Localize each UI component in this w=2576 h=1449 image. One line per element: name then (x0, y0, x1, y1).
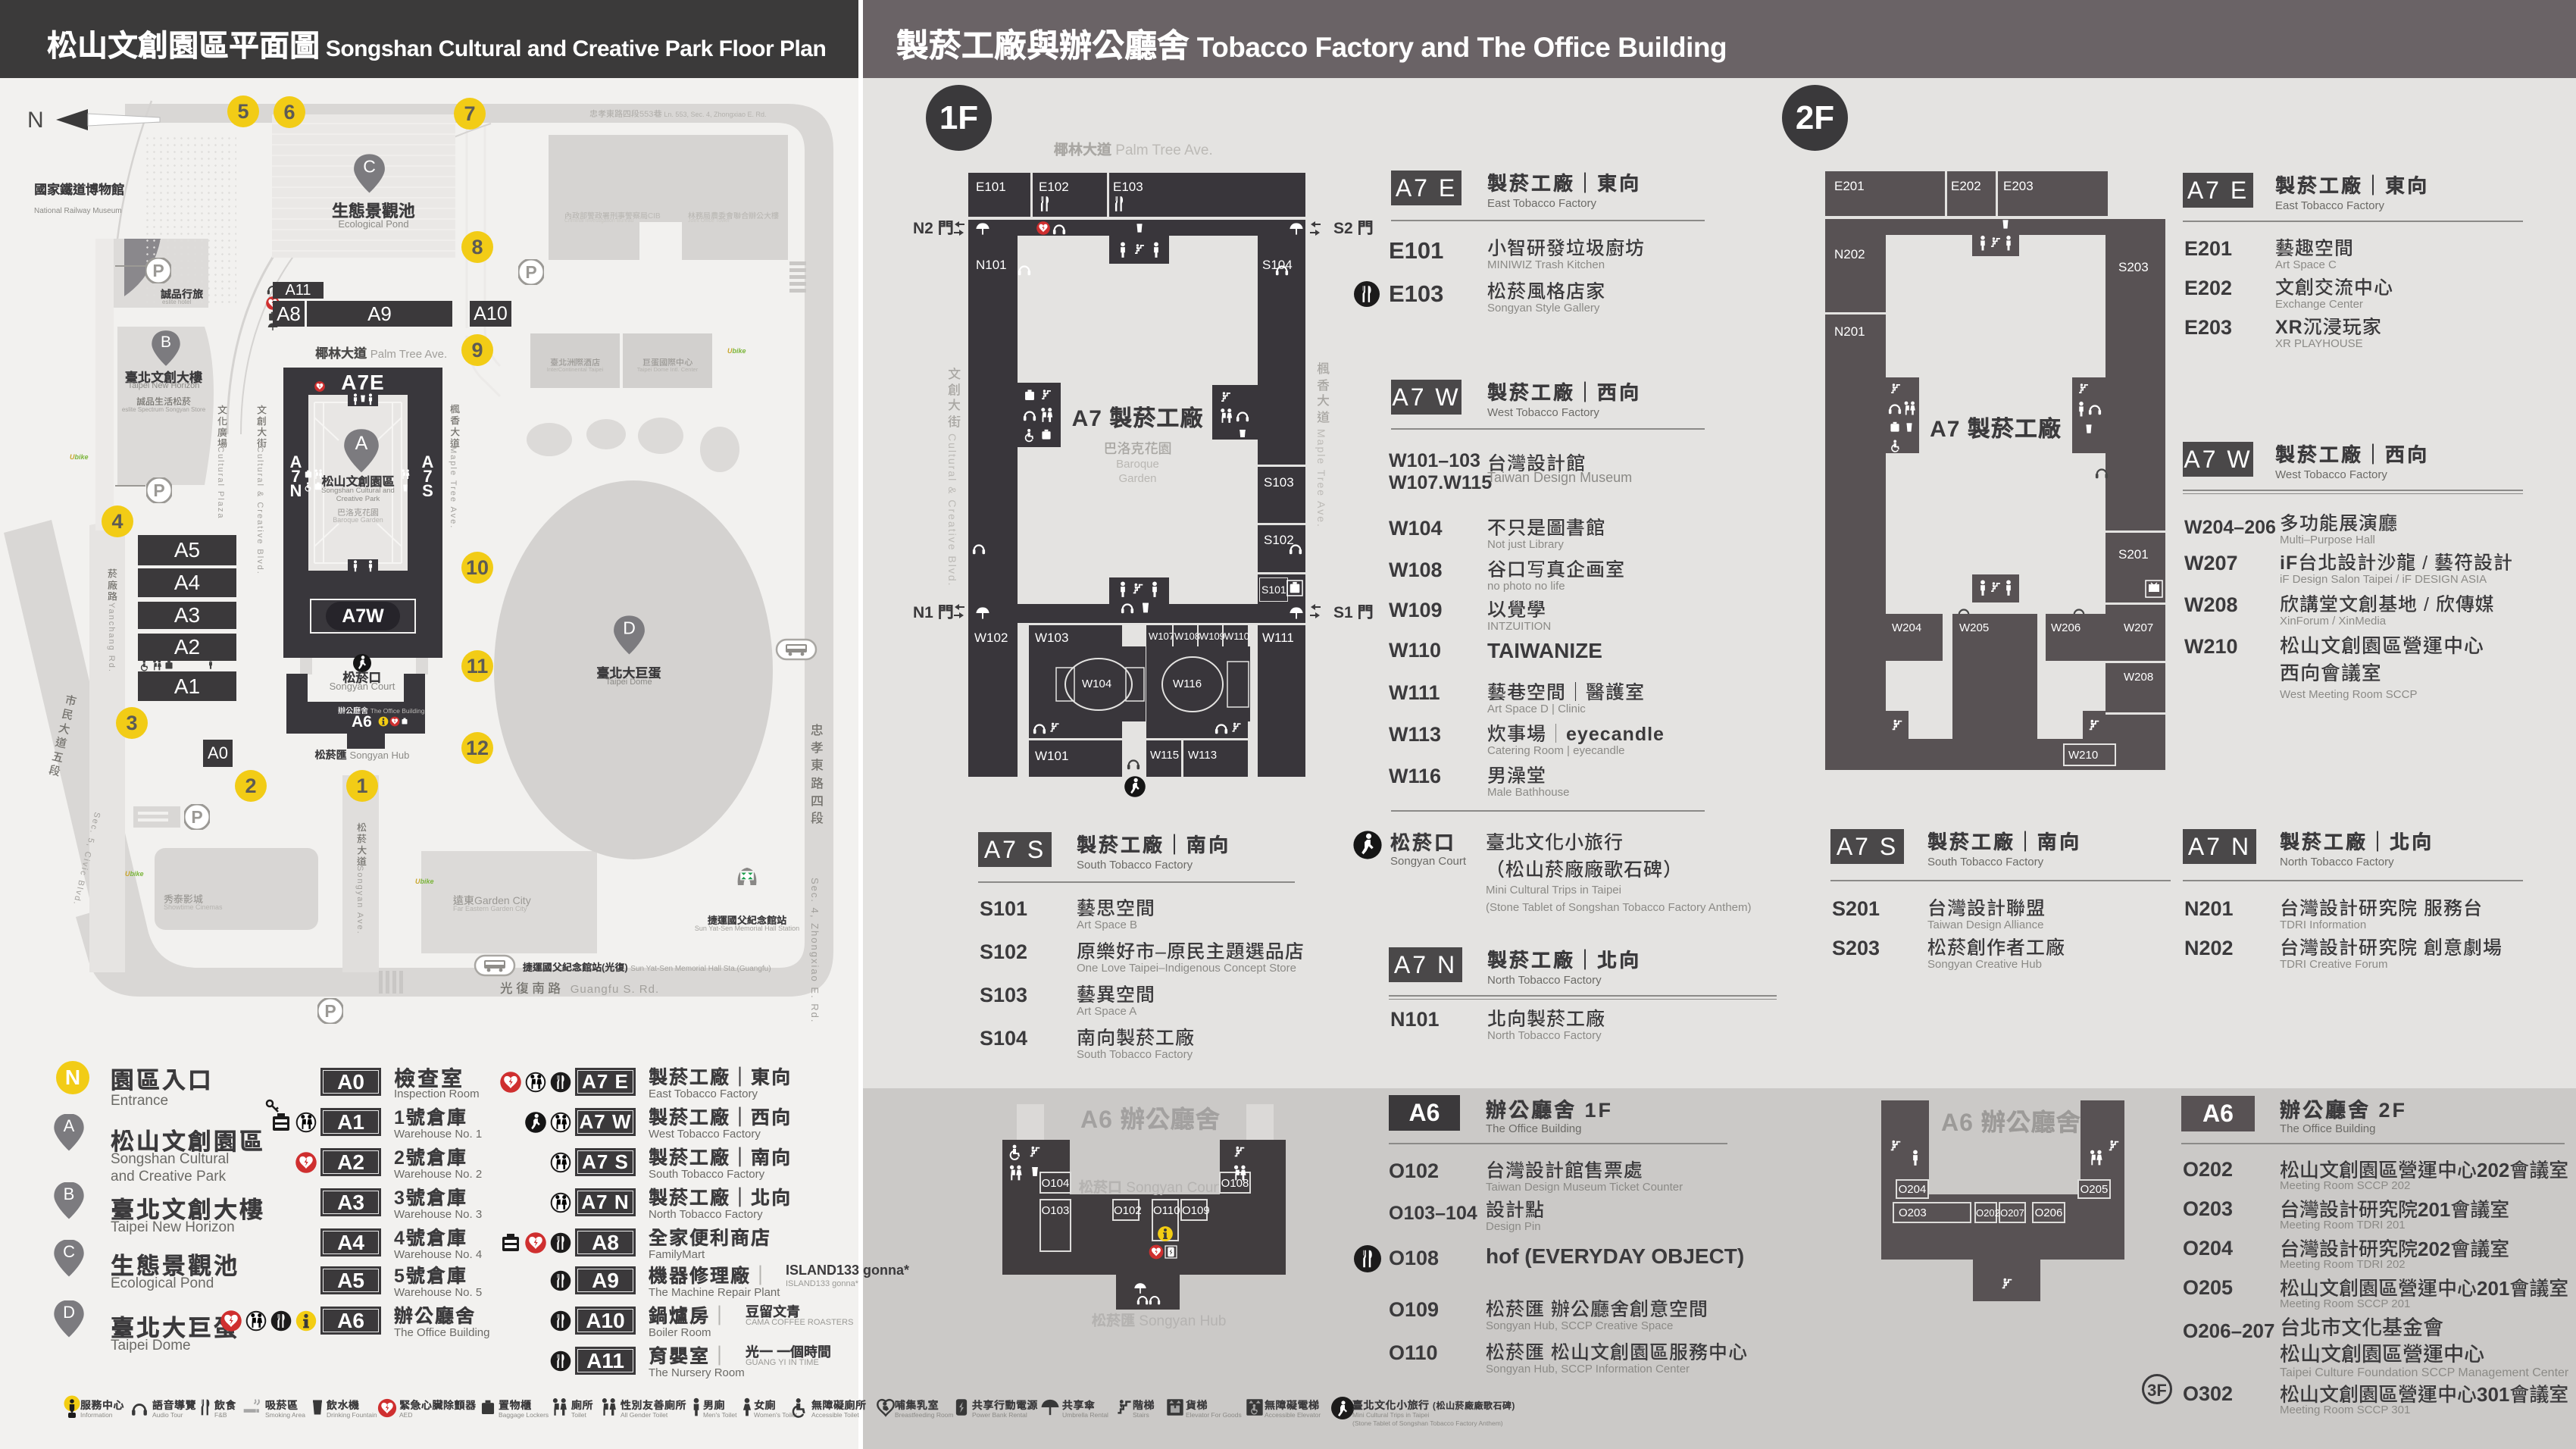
svg-text:B: B (64, 1185, 75, 1203)
svg-text:C: C (63, 1242, 75, 1261)
svg-text:C: C (363, 157, 376, 177)
svg-text:A: A (64, 1116, 75, 1135)
svg-text:D: D (623, 618, 636, 638)
svg-text:D: D (63, 1303, 75, 1322)
svg-text:B: B (161, 333, 171, 351)
svg-text:N: N (27, 108, 44, 133)
svg-text:A: A (355, 433, 368, 454)
